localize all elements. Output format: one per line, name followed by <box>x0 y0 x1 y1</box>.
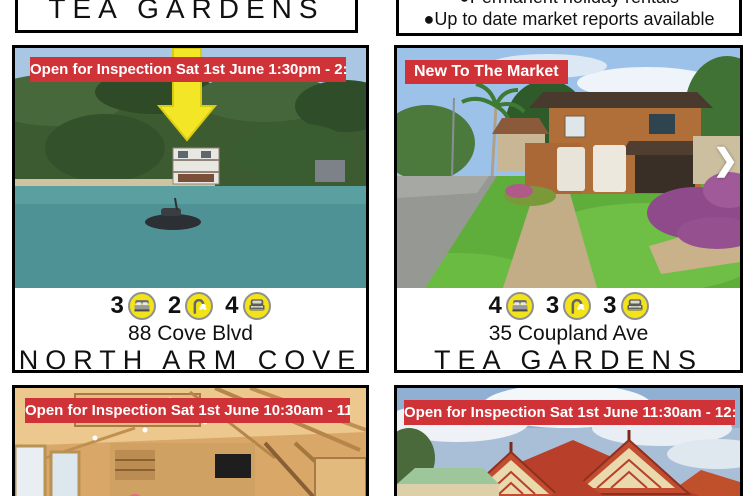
baths-stat: 2 <box>168 292 213 320</box>
listing-card-red-roof-house[interactable]: Open for Inspection Sat 1st June 11:30am… <box>394 385 743 496</box>
header-office-box: TEA GARDENS <box>15 0 358 33</box>
shower-icon <box>185 292 213 320</box>
address: 88 Cove Blvd <box>15 321 366 346</box>
inspection-banner: Open for Inspection Sat 1st June 1:30pm … <box>30 57 346 82</box>
beds-count: 3 <box>110 292 123 320</box>
beds-stat: 4 <box>488 292 533 320</box>
bed-icon <box>128 292 156 320</box>
address: 35 Coupland Ave <box>397 321 740 346</box>
carousel-next-icon[interactable]: ❯ <box>713 146 738 176</box>
stats-row: 3 2 4 <box>15 291 366 321</box>
cars-count: 4 <box>225 292 238 320</box>
shower-icon <box>563 292 591 320</box>
brick-house-scene-graphic <box>397 48 740 288</box>
listing-info: 3 2 4 88 Cove Blv <box>15 288 366 374</box>
cars-stat: 4 <box>225 292 270 320</box>
inspection-banner: Open for Inspection Sat 1st June 11:30am… <box>404 400 735 425</box>
beds-stat: 3 <box>110 292 155 320</box>
service-bullet-2: ●Up to date market reports available <box>401 8 737 30</box>
office-title: TEA GARDENS <box>48 0 324 25</box>
listing-photo-interior[interactable]: Open for Inspection Sat 1st June 10:30am… <box>15 388 366 496</box>
listing-photo-brick-house[interactable]: New To The Market ❯ <box>397 48 740 288</box>
real-estate-flyer-page: TEA GARDENS ●Permanent holiday rentals ●… <box>0 0 756 496</box>
suburb: TEA GARDENS <box>397 346 740 374</box>
baths-count: 3 <box>546 292 559 320</box>
car-icon <box>621 292 649 320</box>
car-icon <box>243 292 271 320</box>
listing-info: 4 3 3 35 Coupland <box>397 288 740 374</box>
inspection-banner: Open for Inspection Sat 1st June 10:30am… <box>25 398 350 423</box>
bed-icon <box>506 292 534 320</box>
listing-photo-red-roof-house[interactable]: Open for Inspection Sat 1st June 11:30am… <box>397 388 740 496</box>
listing-photo-waterfront[interactable]: Open for Inspection Sat 1st June 1:30pm … <box>15 48 366 288</box>
new-to-market-banner: New To The Market <box>405 60 568 84</box>
waterfront-scene-graphic <box>15 48 366 288</box>
listing-card-35-coupland-ave[interactable]: New To The Market ❯ 4 3 3 <box>394 45 743 373</box>
listing-card-88-cove-blvd[interactable]: Open for Inspection Sat 1st June 1:30pm … <box>12 45 369 373</box>
baths-stat: 3 <box>546 292 591 320</box>
header-services-box: ●Permanent holiday rentals ●Up to date m… <box>396 0 742 36</box>
baths-count: 2 <box>168 292 181 320</box>
service-bullet-1: ●Permanent holiday rentals <box>401 0 737 8</box>
listing-card-interior[interactable]: Open for Inspection Sat 1st June 10:30am… <box>12 385 369 496</box>
cars-count: 3 <box>603 292 616 320</box>
cars-stat: 3 <box>603 292 648 320</box>
beds-count: 4 <box>488 292 501 320</box>
suburb: NORTH ARM COVE <box>15 346 366 374</box>
stats-row: 4 3 3 <box>397 291 740 321</box>
